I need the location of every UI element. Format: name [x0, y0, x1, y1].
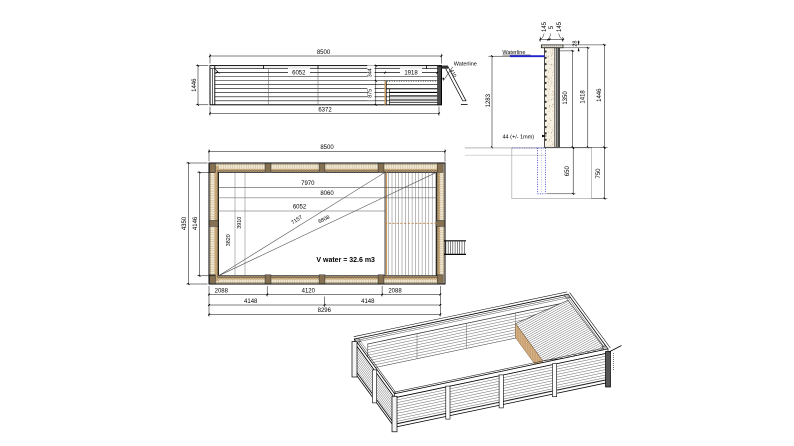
svg-text:6052: 6052 [292, 70, 306, 76]
svg-text:4148: 4148 [244, 299, 258, 305]
svg-text:1283: 1283 [486, 93, 492, 107]
svg-text:4146: 4146 [193, 216, 199, 230]
svg-text:344: 344 [367, 68, 373, 77]
svg-text:V water = 32.6 m3: V water = 32.6 m3 [316, 257, 375, 264]
svg-text:8500: 8500 [320, 145, 334, 151]
svg-text:2088: 2088 [215, 288, 229, 294]
svg-text:4148: 4148 [361, 299, 375, 305]
svg-text:4120: 4120 [302, 288, 316, 294]
svg-text:7970: 7970 [301, 181, 315, 187]
svg-text:Waterline: Waterline [454, 62, 477, 68]
svg-text:1446: 1446 [192, 78, 198, 92]
svg-text:28: 28 [573, 41, 579, 47]
svg-text:8060: 8060 [320, 191, 334, 197]
svg-text:2088: 2088 [388, 288, 402, 294]
svg-text:8500: 8500 [317, 50, 331, 56]
svg-text:6372: 6372 [318, 107, 332, 113]
svg-text:6052: 6052 [293, 204, 307, 210]
svg-text:3910: 3910 [237, 217, 243, 229]
svg-text:875: 875 [367, 89, 373, 98]
svg-text:4350: 4350 [182, 216, 188, 230]
svg-text:650: 650 [565, 166, 571, 177]
svg-text:1918: 1918 [404, 70, 418, 76]
svg-text:1418: 1418 [581, 90, 587, 104]
svg-text:44 (+/- 1mm): 44 (+/- 1mm) [503, 134, 535, 140]
svg-text:145: 145 [557, 21, 563, 32]
svg-text:3820: 3820 [226, 234, 232, 246]
svg-text:1446: 1446 [597, 88, 603, 102]
svg-text:8296: 8296 [318, 308, 332, 314]
svg-text:145: 145 [542, 21, 548, 32]
svg-text:1350: 1350 [563, 91, 569, 105]
svg-text:750: 750 [596, 168, 602, 179]
